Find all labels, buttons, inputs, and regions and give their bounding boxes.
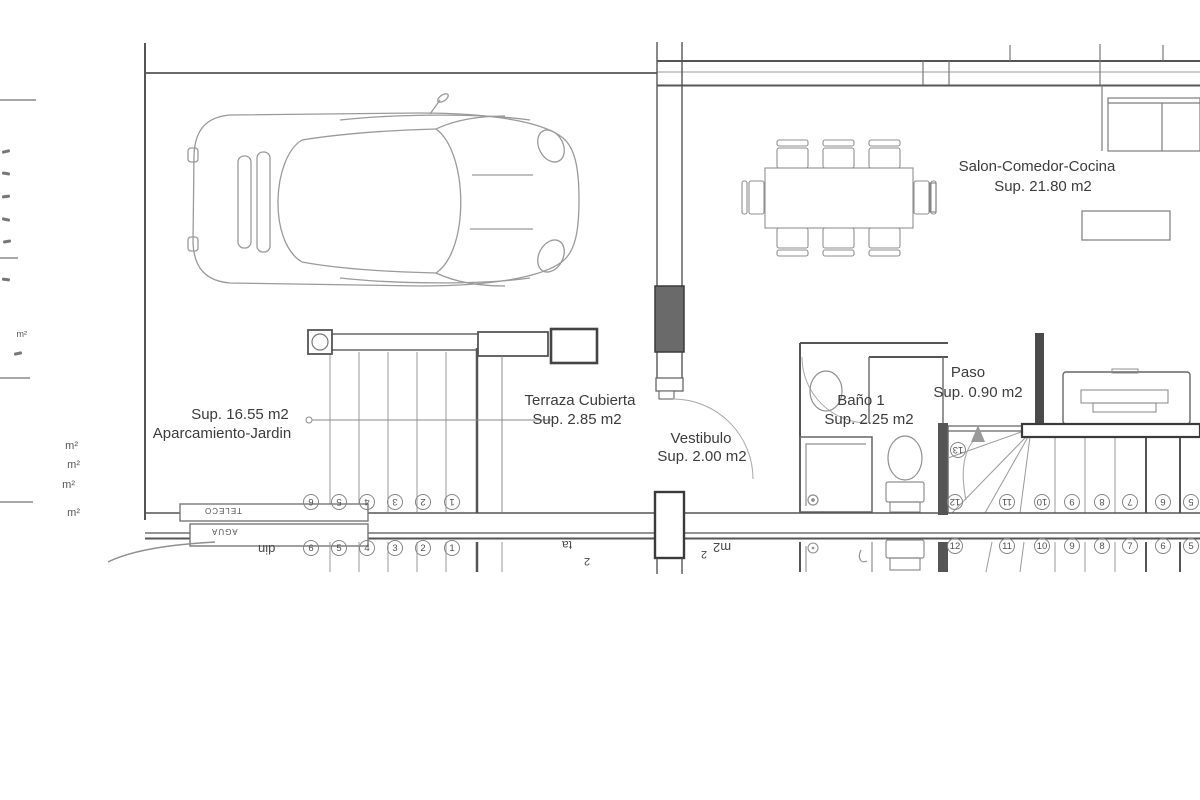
- step-number: 5: [1183, 494, 1199, 510]
- bathroom-walls: [800, 343, 948, 515]
- step-number: 10: [1034, 494, 1050, 510]
- label-salon-area: Sup. 21.80 m2: [994, 178, 1092, 195]
- step-number: 6: [1155, 494, 1171, 510]
- stair-landing: [1022, 424, 1200, 437]
- step-number: 12: [947, 538, 963, 554]
- step-number: 6: [303, 494, 319, 510]
- bathroom-shower: [800, 437, 872, 512]
- mirror-fragment-jardin: din: [258, 542, 275, 557]
- label-terraza-name: Terraza Cubierta: [525, 392, 636, 409]
- step-number: 9: [1064, 494, 1080, 510]
- legend-unit: m²: [50, 440, 78, 452]
- step-number: 13: [950, 442, 966, 458]
- step-number: 5: [331, 540, 347, 556]
- bathroom-toilet: [886, 436, 924, 512]
- label-paso-area: Sup. 0.90 m2: [933, 384, 1022, 401]
- step-number: 8: [1094, 494, 1110, 510]
- entry-wall: [655, 42, 684, 378]
- sideboard: [1063, 369, 1190, 424]
- step-number: 10: [1034, 538, 1050, 554]
- legend-unit: m²: [0, 329, 27, 339]
- car: [188, 92, 579, 286]
- walking-line-arrow: [963, 425, 985, 500]
- step-number: 2: [415, 494, 431, 510]
- top-wall-band: [657, 44, 1200, 86]
- kitchen-island: [1082, 211, 1170, 240]
- label-aparcamiento-name: Aparcamiento-Jardin: [153, 425, 291, 442]
- legend-unit: m²: [52, 459, 80, 471]
- kitchen-counter: [1102, 85, 1200, 151]
- left-legend-lines: [0, 100, 36, 502]
- mirror-fragment-terraza: ta: [562, 538, 572, 552]
- mirror-fragment-vestibulo-unit: m2: [713, 540, 731, 555]
- paso-wall: [1035, 333, 1044, 425]
- step-number: 5: [331, 494, 347, 510]
- step-number: 4: [359, 540, 375, 556]
- step-number: 1: [444, 494, 460, 510]
- label-bano-name: Baño 1: [837, 392, 885, 409]
- mirror-fragment-vestibulo-sup: 2: [701, 548, 707, 560]
- step-number: 3: [387, 540, 403, 556]
- mirror-fragment-terraza-sup: 2: [584, 555, 590, 567]
- step-number: 6: [303, 540, 319, 556]
- label-aparcamiento-area: Sup. 16.55 m2: [191, 406, 289, 423]
- agua-label: AGUA: [211, 527, 238, 536]
- step-number: 2: [415, 540, 431, 556]
- step-number: 7: [1122, 538, 1138, 554]
- step-number: 11: [999, 494, 1015, 510]
- step-number: 11: [999, 538, 1015, 554]
- step-number: 6: [1155, 538, 1171, 554]
- step-number: 7: [1122, 494, 1138, 510]
- step-number: 3: [387, 494, 403, 510]
- step-number: 8: [1094, 538, 1110, 554]
- legend-unit: m²: [47, 479, 75, 491]
- step-number: 9: [1064, 538, 1080, 554]
- label-vestibulo-name: Vestibulo: [671, 430, 732, 447]
- legend-unit: m²: [50, 507, 80, 519]
- label-vestibulo-area: Sup. 2.00 m2: [657, 448, 746, 465]
- label-bano-area: Sup. 2.25 m2: [824, 411, 913, 428]
- step-number: 1: [444, 540, 460, 556]
- label-paso-name: Paso: [951, 364, 985, 381]
- label-salon-name: Salon-Comedor-Cocina: [959, 158, 1116, 175]
- step-number: 4: [359, 494, 375, 510]
- label-terraza-area: Sup. 2.85 m2: [532, 411, 621, 428]
- party-wall-pillar: [655, 492, 684, 558]
- dining-set: [742, 140, 936, 256]
- step-number: 5: [1183, 538, 1199, 554]
- floor-plan: Salon-Comedor-Cocina Sup. 21.80 m2 Sup. …: [0, 0, 1200, 800]
- teleco-label: TELECO: [204, 506, 242, 515]
- step-number: 12: [947, 494, 963, 510]
